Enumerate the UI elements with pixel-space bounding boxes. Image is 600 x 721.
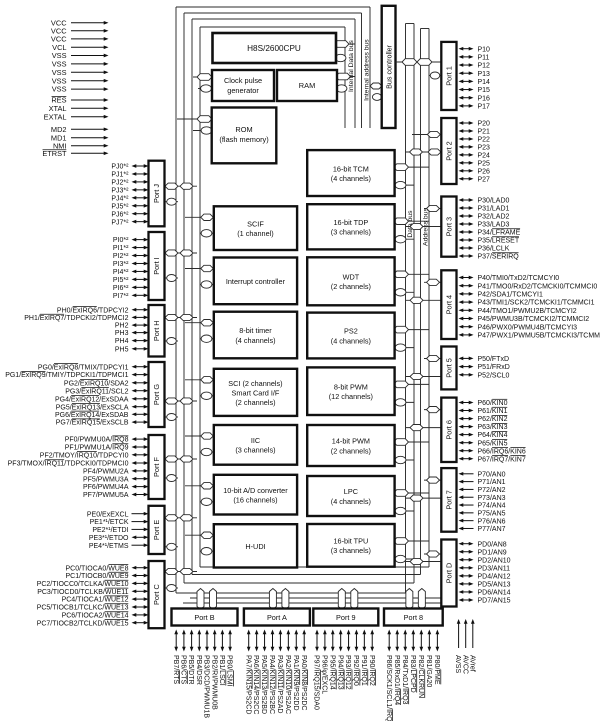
svg-text:Interrupt controller: Interrupt controller [226, 277, 286, 286]
svg-text:(12 channels): (12 channels) [329, 392, 373, 401]
svg-text:P47/PWX1/PWMU5B/TCMCKI3/TCMMCI: P47/PWX1/PWMU5B/TCMCKI3/TCMMCI3 [478, 333, 600, 340]
svg-text:AVCC: AVCC [461, 655, 468, 674]
svg-text:PF5/PWMU3A: PF5/PWMU3A [83, 476, 129, 483]
svg-text:IIC: IIC [251, 436, 260, 445]
svg-text:PG5/ExIRQ13/ExSCLA: PG5/ExIRQ13/ExSCLA [56, 404, 129, 411]
svg-text:PD3/AN11: PD3/AN11 [478, 565, 511, 572]
svg-text:PB1/LSCI: PB1/LSCI [218, 655, 225, 686]
svg-text:PG4/ExIRQ12/ExSDAA: PG4/ExIRQ12/ExSDAA [55, 396, 129, 403]
svg-text:PE4*¹/ETMS: PE4*¹/ETMS [89, 543, 129, 550]
svg-text:P23: P23 [478, 145, 491, 152]
svg-text:P84/TxD1/IRQ3: P84/TxD1/IRQ3 [401, 655, 408, 705]
svg-text:PA5/KIN13/PS2BD: PA5/KIN13/PS2BD [260, 655, 267, 714]
svg-text:PB7/RTS: PB7/RTS [172, 655, 179, 684]
svg-text:Port 9: Port 9 [336, 613, 355, 622]
svg-text:PD2/AN10: PD2/AN10 [478, 557, 511, 564]
svg-text:P64/KIN4: P64/KIN4 [478, 432, 508, 439]
svg-text:PB3/DCD/PWMU1B: PB3/DCD/PWMU1B [203, 655, 210, 718]
svg-text:P37/SERIRQ: P37/SERIRQ [478, 254, 520, 261]
svg-text:14-bit PWM: 14-bit PWM [332, 437, 370, 446]
svg-text:(16 channels): (16 channels) [233, 495, 277, 504]
svg-text:P44/TMO1/PWMU2B/TCMCYI2: P44/TMO1/PWMU2B/TCMCYI2 [478, 308, 577, 315]
svg-text:PJ7*²: PJ7*² [111, 219, 129, 226]
svg-text:PD4/AN12: PD4/AN12 [478, 573, 511, 580]
svg-text:Port C: Port C [152, 584, 161, 605]
svg-text:PG6/ExIRQ14/ExSDAB: PG6/ExIRQ14/ExSDAB [55, 412, 129, 419]
svg-text:WDT: WDT [343, 273, 360, 282]
svg-text:PH2: PH2 [115, 323, 129, 330]
svg-text:Port 4: Port 4 [445, 295, 454, 314]
svg-text:P75/AN5: P75/AN5 [478, 510, 506, 517]
svg-text:P13: P13 [478, 71, 491, 78]
svg-text:PB6/CTS: PB6/CTS [180, 655, 187, 685]
svg-text:PF1/PWMU1A/IRQ9: PF1/PWMU1A/IRQ9 [65, 445, 129, 452]
svg-text:P73/AN3: P73/AN3 [478, 495, 506, 502]
svg-text:Port 2: Port 2 [445, 141, 454, 160]
svg-text:P66/IRQ6/KIN6: P66/IRQ6/KIN6 [478, 448, 526, 455]
svg-text:PB5/DTR: PB5/DTR [187, 655, 194, 685]
svg-text:Port 5: Port 5 [445, 358, 454, 377]
svg-text:PD5/AN13: PD5/AN13 [478, 582, 511, 589]
svg-text:P71/AN1: P71/AN1 [478, 479, 506, 486]
svg-text:PF7/PWMU5A: PF7/PWMU5A [83, 492, 129, 499]
svg-text:Port A: Port A [267, 613, 287, 622]
svg-text:10-bit A/D converter: 10-bit A/D converter [223, 486, 288, 495]
svg-text:AVSS: AVSS [454, 655, 461, 673]
svg-text:SCI (2 channels): SCI (2 channels) [228, 379, 282, 388]
svg-text:PB0/LSMI: PB0/LSMI [226, 655, 233, 687]
svg-text:P14: P14 [478, 79, 491, 86]
svg-text:PG3/ExIRQ11/SCL2: PG3/ExIRQ11/SCL2 [65, 388, 128, 395]
svg-text:Port 1: Port 1 [445, 66, 454, 85]
svg-text:P20: P20 [478, 121, 491, 128]
svg-text:P76/AN6: P76/AN6 [478, 518, 506, 525]
svg-text:PJ0*²: PJ0*² [111, 164, 129, 171]
svg-text:PA0/KIN8/PS2DC: PA0/KIN8/PS2DC [300, 655, 307, 711]
svg-text:P90/IRQ2: P90/IRQ2 [368, 655, 375, 686]
svg-text:PI2*²: PI2*² [113, 253, 129, 260]
svg-text:PF4/PWMU2A: PF4/PWMU2A [83, 469, 129, 476]
svg-text:PI1*²: PI1*² [113, 245, 129, 252]
svg-text:Smart Card I/F: Smart Card I/F [232, 388, 280, 397]
svg-text:PD7/AN15: PD7/AN15 [478, 598, 511, 605]
svg-text:Clock pulse: Clock pulse [224, 76, 262, 85]
svg-text:PC0/TIOCA0/WUE8: PC0/TIOCA0/WUE8 [65, 565, 128, 572]
svg-text:8-bit timer: 8-bit timer [239, 326, 272, 335]
svg-text:PC2/TIOCC0/TCLKA/WUE10: PC2/TIOCC0/TCLKA/WUE10 [37, 581, 129, 588]
svg-text:SCIF: SCIF [247, 219, 264, 228]
svg-text:Port 7: Port 7 [445, 490, 454, 509]
svg-text:P24: P24 [478, 152, 491, 159]
svg-text:Port E: Port E [152, 520, 161, 540]
svg-text:P93/IRQ12: P93/IRQ12 [344, 655, 351, 690]
svg-text:P30/LAD0: P30/LAD0 [478, 198, 510, 205]
svg-text:(3 channels): (3 channels) [331, 228, 371, 237]
svg-text:P72/AN2: P72/AN2 [478, 487, 506, 494]
svg-text:P83/LPCPD: P83/LPCPD [409, 655, 416, 693]
svg-text:P35/LRESET: P35/LRESET [478, 238, 520, 245]
svg-text:P41/TMO0/RxD2/TCMCKI0/TCMMCI0: P41/TMO0/RxD2/TCMCKI0/TCMMCI0 [478, 283, 598, 290]
svg-text:P31/LAD1: P31/LAD1 [478, 206, 510, 213]
svg-text:ETRST: ETRST [42, 149, 67, 158]
svg-text:PI6*²: PI6*² [113, 285, 129, 292]
svg-text:P42/SDA1/TCMCYI1: P42/SDA1/TCMCYI1 [478, 292, 543, 299]
svg-text:PH4: PH4 [115, 338, 129, 345]
svg-text:P32/LAD2: P32/LAD2 [478, 214, 510, 221]
svg-text:PB4/DSR: PB4/DSR [195, 655, 202, 685]
svg-text:PB2/RI/PWMU0B: PB2/RI/PWMU0B [210, 655, 217, 710]
svg-text:P40/TMI0/TxD2/TCMCYI0: P40/TMI0/TxD2/TCMCYI0 [478, 275, 560, 282]
svg-text:PE1*¹/ETCK: PE1*¹/ETCK [90, 519, 129, 526]
svg-text:P25: P25 [478, 160, 491, 167]
svg-text:P26: P26 [478, 168, 491, 175]
svg-text:(2 channels): (2 channels) [331, 282, 371, 291]
svg-text:Port I: Port I [152, 257, 161, 274]
svg-text:P94/IRQ13: P94/IRQ13 [336, 655, 343, 690]
svg-text:PC1/TIOCB0/WUE9: PC1/TIOCB0/WUE9 [65, 573, 128, 580]
svg-text:PE2*¹/ETDI: PE2*¹/ETDI [92, 527, 128, 534]
svg-text:AVref: AVref [468, 655, 475, 672]
svg-text:P91/IRQ1: P91/IRQ1 [360, 655, 367, 686]
svg-text:PH5: PH5 [115, 346, 129, 353]
svg-text:PG2/ExIRQ10/SDA2: PG2/ExIRQ10/SDA2 [64, 380, 129, 387]
svg-text:P36/LCLK: P36/LCLK [478, 246, 510, 253]
svg-text:VSS: VSS [52, 85, 67, 94]
svg-text:PF6/PWMU4A: PF6/PWMU4A [83, 484, 129, 491]
svg-text:EXTAL: EXTAL [44, 112, 67, 121]
svg-text:Port H: Port H [152, 320, 161, 341]
svg-text:(1 channel): (1 channel) [237, 229, 274, 238]
svg-text:P12: P12 [478, 63, 491, 70]
svg-text:P65/KIN5: P65/KIN5 [478, 440, 508, 447]
svg-text:PJ6*²: PJ6*² [111, 211, 129, 218]
svg-text:(2 channels): (2 channels) [235, 398, 275, 407]
svg-text:PA2/KIN10/PS2AC: PA2/KIN10/PS2AC [284, 655, 291, 714]
svg-text:ROM: ROM [235, 125, 252, 134]
svg-text:PS2: PS2 [344, 327, 358, 336]
svg-text:P16: P16 [478, 95, 491, 102]
svg-text:PI7*²: PI7*² [113, 293, 129, 300]
svg-text:8-bit PWM: 8-bit PWM [334, 382, 368, 391]
svg-text:LPC: LPC [344, 487, 358, 496]
svg-text:P17: P17 [478, 103, 491, 110]
svg-text:P97/IRQ15/SDA0: P97/IRQ15/SDA0 [313, 655, 320, 710]
svg-text:P85/RxD1/IRQ4: P85/RxD1/IRQ4 [393, 655, 400, 705]
svg-text:P67/IRQ7/KIN7: P67/IRQ7/KIN7 [478, 456, 526, 463]
svg-text:P15: P15 [478, 87, 491, 94]
svg-text:P77/AN7: P77/AN7 [478, 526, 506, 533]
svg-text:P92/IRQ0: P92/IRQ0 [352, 655, 359, 686]
svg-text:P22: P22 [478, 137, 491, 144]
svg-text:PC3/TIOCD0/TCLKB/WUE11: PC3/TIOCD0/TCLKB/WUE11 [37, 589, 128, 596]
svg-text:PH0/ExIRQ6/TDPCYI2: PH0/ExIRQ6/TDPCYI2 [57, 307, 129, 314]
svg-text:P80/PME: P80/PME [433, 655, 440, 685]
svg-text:PC4/TIOCA1/WUE12: PC4/TIOCA1/WUE12 [62, 597, 129, 604]
svg-text:PA7/KIN15/PS2CD: PA7/KIN15/PS2CD [244, 655, 251, 714]
svg-text:P61/KIN1: P61/KIN1 [478, 408, 508, 415]
svg-text:PH1/ExIRQ7/TDPCKI2/TDPMCI2: PH1/ExIRQ7/TDPCKI2/TDPMCI2 [24, 315, 128, 322]
svg-text:PG7/ExIRQ15/ExSCLB: PG7/ExIRQ15/ExSCLB [56, 420, 129, 427]
svg-text:PA1/KIN9/PS2DD: PA1/KIN9/PS2DD [292, 655, 299, 711]
svg-text:RAM: RAM [299, 81, 315, 90]
svg-text:PC7/TIOCB2/TCLKD/WUE15: PC7/TIOCB2/TCLKD/WUE15 [37, 620, 129, 627]
svg-text:Port D: Port D [445, 563, 454, 584]
svg-text:P43/TMI1/SCK2/TCMCKI1/TCMMCI1: P43/TMI1/SCK2/TCMCKI1/TCMMCI1 [478, 300, 595, 307]
svg-text:P45/PWMU3B/TCMCKI2/TCMMCI2: P45/PWMU3B/TCMCKI2/TCMMCI2 [478, 316, 590, 323]
svg-text:PI0*²: PI0*² [113, 237, 129, 244]
svg-text:PJ4*²: PJ4*² [111, 195, 129, 202]
svg-text:P50/FTxD: P50/FTxD [478, 356, 510, 363]
svg-text:PD1/AN9: PD1/AN9 [478, 549, 507, 556]
svg-text:PI5*²: PI5*² [113, 277, 129, 284]
svg-text:Port 3: Port 3 [445, 217, 454, 236]
svg-text:PF0/PWMU0A/IRQ8: PF0/PWMU0A/IRQ8 [65, 437, 129, 444]
svg-text:P95/IRQ14: P95/IRQ14 [328, 655, 335, 690]
svg-text:P52/SCL0: P52/SCL0 [478, 372, 510, 379]
svg-text:P86/SCK1/SCL1/IRQ5: P86/SCK1/SCL1/IRQ5 [385, 655, 392, 721]
svg-text:P70/AN0: P70/AN0 [478, 471, 506, 478]
svg-text:16-bit TPU: 16-bit TPU [333, 537, 368, 546]
svg-text:P60/KIN0: P60/KIN0 [478, 400, 508, 407]
svg-text:(4 channels): (4 channels) [331, 174, 371, 183]
svg-text:Bus controller: Bus controller [385, 44, 394, 89]
svg-text:PH3: PH3 [115, 330, 129, 337]
svg-text:P33/LAD3: P33/LAD3 [478, 222, 510, 229]
svg-text:PJ2*²: PJ2*² [111, 180, 129, 187]
svg-text:16-bit TDP: 16-bit TDP [333, 218, 368, 227]
svg-text:(4 channels): (4 channels) [331, 497, 371, 506]
svg-text:P21: P21 [478, 129, 491, 136]
svg-text:(4 channels): (4 channels) [331, 336, 371, 345]
svg-text:16-bit TCM: 16-bit TCM [333, 164, 369, 173]
svg-text:Port G: Port G [152, 384, 161, 405]
svg-text:P81/GA20: P81/GA20 [425, 655, 432, 687]
svg-text:H8S/2600CPU: H8S/2600CPU [247, 44, 301, 53]
svg-text:P27: P27 [478, 176, 491, 183]
svg-text:PI4*²: PI4*² [113, 269, 129, 276]
svg-text:Internal address bus: Internal address bus [363, 39, 370, 101]
svg-text:Port F: Port F [152, 457, 161, 477]
svg-text:PG0/ExIRQ8/TMIX/TDPCYI1: PG0/ExIRQ8/TMIX/TDPCYI1 [38, 364, 129, 371]
svg-text:PD6/AN14: PD6/AN14 [478, 590, 511, 597]
svg-text:Port B: Port B [194, 613, 214, 622]
svg-text:PE0/ExEXCL: PE0/ExEXCL [87, 511, 129, 518]
svg-text:Port 8: Port 8 [404, 613, 423, 622]
svg-text:P11: P11 [478, 54, 490, 61]
svg-text:PE3*¹/ETDO: PE3*¹/ETDO [89, 535, 129, 542]
svg-text:PA4/KIN12/PS2BC: PA4/KIN12/PS2BC [268, 655, 275, 714]
svg-text:PF2/TMOY/IRQ10/TDPCYI0: PF2/TMOY/IRQ10/TDPCYI0 [40, 452, 129, 459]
svg-text:(3 channels): (3 channels) [331, 546, 371, 555]
svg-text:P46/PWX0/PWMU4B/TCMCYI3: P46/PWX0/PWMU4B/TCMCYI3 [478, 324, 578, 331]
svg-text:PG1/ExIRQ9/TMIY/TDPCKI1/TDPMCI: PG1/ExIRQ9/TMIY/TDPCKI1/TDPMCI1 [5, 372, 128, 379]
svg-text:PJ3*²: PJ3*² [111, 187, 129, 194]
svg-text:PC5/TIOCB1/TCLKC/WUE13: PC5/TIOCB1/TCLKC/WUE13 [37, 605, 129, 612]
svg-text:(flash memory): (flash memory) [219, 135, 268, 144]
svg-text:(2 channels): (2 channels) [331, 446, 371, 455]
svg-text:Internal Data bus: Internal Data bus [348, 40, 355, 92]
svg-text:P96/φ/EXCL: P96/φ/EXCL [320, 655, 327, 694]
svg-text:P62/KIN2: P62/KIN2 [478, 416, 508, 423]
svg-text:P34/LFRAME: P34/LFRAME [478, 230, 521, 237]
svg-text:PI3*²: PI3*² [113, 261, 129, 268]
svg-text:P74/AN4: P74/AN4 [478, 503, 506, 510]
svg-text:Port J: Port J [152, 184, 161, 203]
svg-text:Port 6: Port 6 [445, 420, 454, 439]
svg-text:P51/FRxD: P51/FRxD [478, 364, 510, 371]
svg-text:PF3/TMOX/IRQ11/TDPCKI0/TDPMCI0: PF3/TMOX/IRQ11/TDPCKI0/TDPMCI0 [8, 461, 129, 468]
svg-text:(4 channels): (4 channels) [235, 336, 275, 345]
svg-text:(3 channels): (3 channels) [235, 446, 275, 455]
svg-text:P63/KIN3: P63/KIN3 [478, 424, 508, 431]
svg-text:generator: generator [227, 86, 259, 95]
svg-text:PA3/KIN11/PS2AD: PA3/KIN11/PS2AD [276, 655, 283, 714]
svg-text:PD0/AN8: PD0/AN8 [478, 541, 507, 548]
svg-text:PC6/TIOCA2/WUE14: PC6/TIOCA2/WUE14 [62, 613, 129, 620]
svg-text:P82/CLKRUN: P82/CLKRUN [417, 655, 424, 698]
svg-text:P10: P10 [478, 46, 491, 53]
svg-text:PJ5*²: PJ5*² [111, 203, 129, 210]
svg-text:PA6/KIN14/PS2CC: PA6/KIN14/PS2CC [252, 655, 259, 714]
svg-text:H-UDI: H-UDI [245, 542, 265, 551]
svg-text:PJ1*²: PJ1*² [111, 172, 129, 179]
